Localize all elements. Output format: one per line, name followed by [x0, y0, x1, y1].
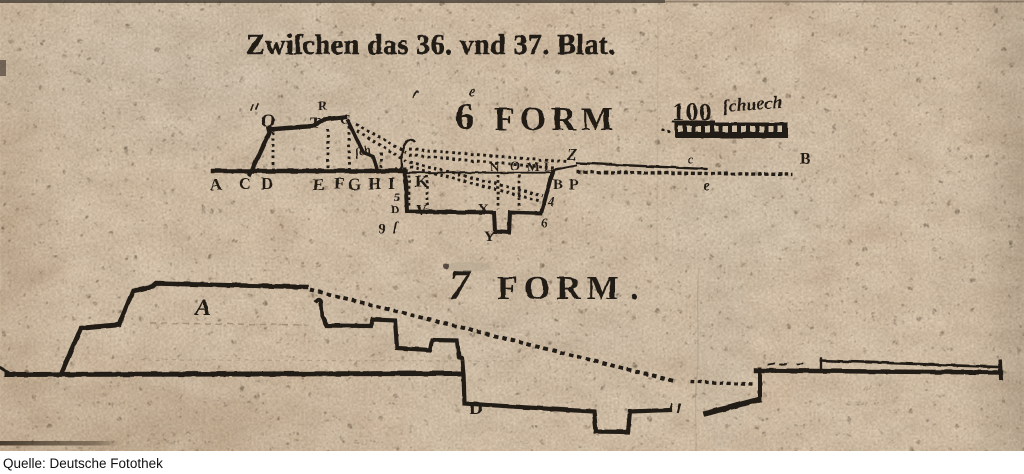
svg-text:G: G — [348, 175, 361, 194]
svg-text:D: D — [469, 398, 483, 419]
svg-text:E: E — [313, 175, 324, 194]
svg-text:K: K — [415, 172, 429, 191]
svg-text:O: O — [510, 158, 520, 173]
svg-text:Zwiſchen das 36. vnd 37. Blat.: Zwiſchen das 36. vnd 37. Blat. — [246, 30, 616, 61]
svg-text:9: 9 — [379, 222, 386, 237]
svg-text:B: B — [553, 177, 563, 193]
svg-text:M: M — [527, 159, 539, 174]
svg-text:FORM: FORM — [497, 270, 625, 307]
svg-text:N: N — [490, 159, 500, 174]
svg-text:Y: Y — [484, 229, 495, 245]
svg-text:B: B — [800, 151, 811, 168]
svg-text:C: C — [239, 174, 251, 193]
svg-text:ſchuech: ſchuech — [722, 92, 783, 116]
svg-text:T: T — [310, 115, 321, 132]
svg-text:Quelle: Deutsche Fotothek: Quelle: Deutsche Fotothek — [3, 456, 163, 471]
svg-text:e: e — [703, 178, 710, 194]
svg-text:e: e — [469, 84, 476, 100]
svg-text:Q: Q — [261, 111, 276, 132]
svg-text:Z: Z — [566, 147, 577, 164]
svg-text:G: G — [340, 113, 351, 128]
svg-text:F: F — [334, 174, 344, 193]
svg-text:6: 6 — [541, 215, 548, 230]
svg-text:D: D — [261, 174, 273, 193]
svg-text:.: . — [630, 270, 639, 307]
svg-text:P: P — [569, 177, 578, 193]
svg-text:c: c — [688, 151, 694, 166]
svg-text:V: V — [416, 203, 427, 219]
svg-text:X: X — [478, 202, 489, 218]
svg-text:6: 6 — [455, 96, 474, 138]
svg-text:L: L — [544, 159, 553, 174]
svg-text:R: R — [318, 98, 328, 113]
svg-text:A: A — [210, 175, 223, 194]
svg-text:FORM: FORM — [494, 101, 618, 138]
svg-text:4: 4 — [547, 194, 555, 209]
svg-text:D: D — [391, 202, 400, 216]
svg-text:A: A — [193, 295, 211, 321]
svg-text:H: H — [368, 174, 381, 193]
